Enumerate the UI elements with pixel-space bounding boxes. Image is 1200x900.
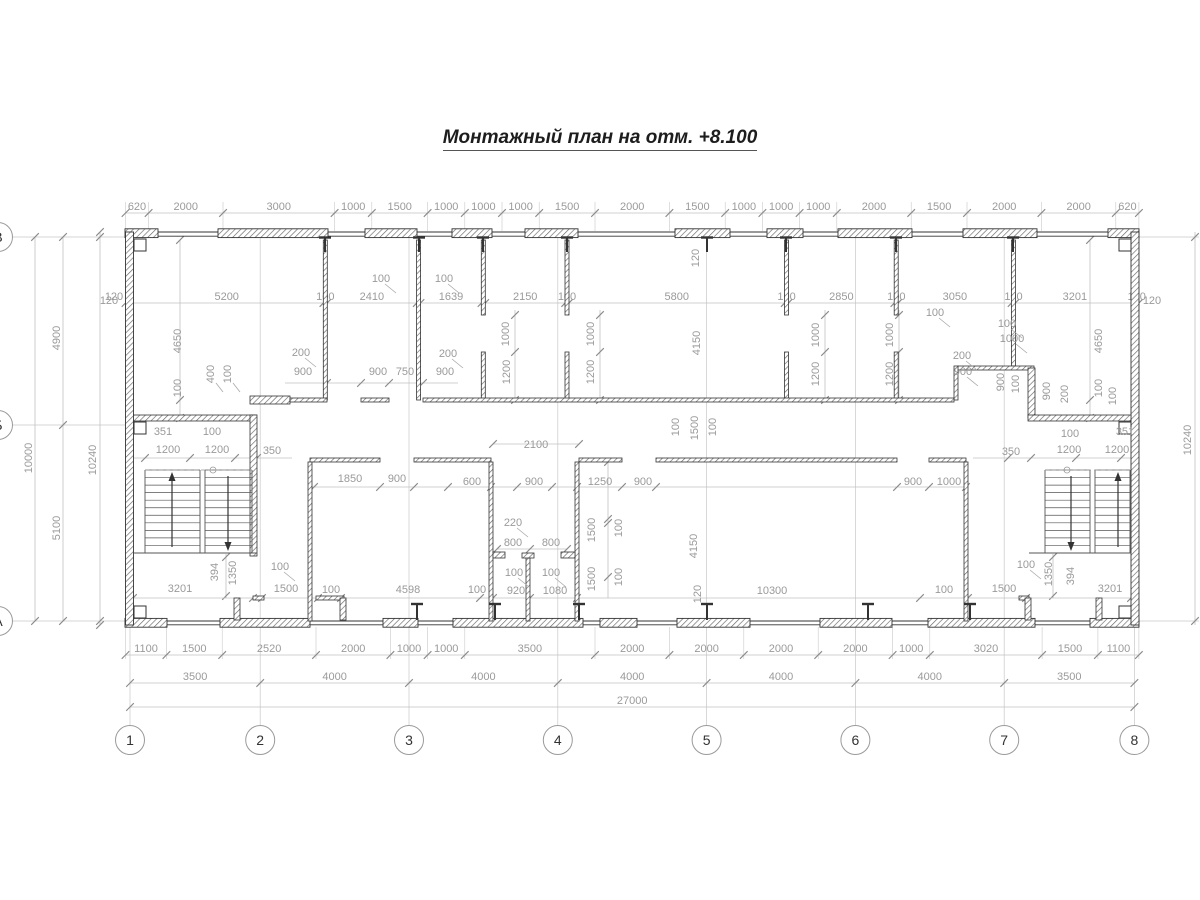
dim-label: 2000 <box>843 643 867 655</box>
stair-direction-arrow-up <box>1115 472 1122 547</box>
dim-label: 1000 <box>500 322 512 346</box>
stair-direction-arrow-down <box>1068 476 1075 551</box>
dim-label: 4000 <box>769 671 793 683</box>
dim-label: 3201 <box>168 583 192 595</box>
dim-label: 2850 <box>829 291 853 303</box>
dim-label: 5 <box>703 732 711 748</box>
dim-label: 2000 <box>862 201 886 213</box>
dim-label: 1200 <box>1105 444 1129 456</box>
dim-label: 900 <box>388 473 406 485</box>
dim-label: 2000 <box>620 201 644 213</box>
dim-label: 1250 <box>588 476 612 488</box>
dim-label: 4150 <box>691 331 703 355</box>
dim-label: 4000 <box>471 671 495 683</box>
dim-label: 100 <box>172 379 184 397</box>
dim-label: 351 <box>154 426 172 438</box>
dim-label: 1000 <box>397 643 421 655</box>
dim-label: 2410 <box>360 291 384 303</box>
dim-label: 1200 <box>501 360 513 384</box>
dim-label: 27000 <box>617 695 648 707</box>
dim-label: 2000 <box>620 643 644 655</box>
dim-label: 4650 <box>172 329 184 353</box>
dim-label: 351 <box>1116 426 1134 438</box>
dim-label: 1000 <box>899 643 923 655</box>
dim-label: 2520 <box>257 643 281 655</box>
drawing-title: Монтажный план на отм. +8.100 <box>0 127 1200 151</box>
dim-label: 3 <box>405 732 413 748</box>
dim-label: 1 <box>126 732 134 748</box>
dim-label: 1000 <box>806 201 830 213</box>
dim-label: 1000 <box>769 201 793 213</box>
dim-label: В <box>0 229 3 245</box>
dim-label: 4000 <box>918 671 942 683</box>
dim-label: 4000 <box>322 671 346 683</box>
dim-label: 100 <box>926 307 944 319</box>
dim-label: 3500 <box>183 671 207 683</box>
dim-label: 4598 <box>396 584 420 596</box>
dim-label: 1000 <box>884 323 896 347</box>
dim-label: 800 <box>504 537 522 549</box>
dim-label: 3020 <box>974 643 998 655</box>
dim-label: 10240 <box>1182 425 1194 456</box>
dim-label: 100 <box>935 584 953 596</box>
dim-label: 200 <box>953 350 971 362</box>
dim-label: 1350 <box>227 561 239 585</box>
dim-label: 100 <box>1107 387 1119 405</box>
dim-label: 200 <box>292 347 310 359</box>
dim-label: 1000 <box>508 201 532 213</box>
dim-label: 900 <box>436 366 454 378</box>
dim-label: 4 <box>554 732 562 748</box>
dim-label: 4650 <box>1093 329 1105 353</box>
dim-label: 4000 <box>620 671 644 683</box>
dim-label: 2000 <box>1066 201 1090 213</box>
dim-label: 1200 <box>884 362 896 386</box>
dim-label: 2 <box>256 732 264 748</box>
dim-label: 1500 <box>387 201 411 213</box>
page-title: Монтажный план на отм. +8.100 <box>443 127 758 151</box>
dim-label: 100 <box>1061 428 1079 440</box>
dim-label: 920 <box>507 585 525 597</box>
dim-label: 1000 <box>434 643 458 655</box>
dim-label: 3000 <box>267 201 291 213</box>
dim-label: 1100 <box>1107 643 1131 655</box>
dim-label: 394 <box>1065 567 1077 585</box>
dim-label: 5800 <box>665 291 689 303</box>
dim-label: 200 <box>1059 385 1071 403</box>
dim-label: 200 <box>439 348 457 360</box>
dim-label: 1500 <box>555 201 579 213</box>
dim-label: 1500 <box>274 583 298 595</box>
dim-label: 1500 <box>685 201 709 213</box>
dim-label: 1000 <box>341 201 365 213</box>
dim-label: 2150 <box>513 291 537 303</box>
dim-label: 750 <box>396 366 414 378</box>
dim-label: 1200 <box>585 360 597 384</box>
dim-label: 100 <box>435 273 453 285</box>
dim-label: 1500 <box>927 201 951 213</box>
dim-label: 2000 <box>992 201 1016 213</box>
dim-label: 3500 <box>1057 671 1081 683</box>
dim-label: 900 <box>995 373 1007 391</box>
dim-label: 1500 <box>182 643 206 655</box>
dim-label: 3050 <box>943 291 967 303</box>
dim-label: 2000 <box>769 643 793 655</box>
dim-label: 120 <box>692 585 704 603</box>
dim-label: 1500 <box>1058 643 1082 655</box>
dim-label: 7 <box>1000 732 1008 748</box>
dim-label: 620 <box>1118 201 1136 213</box>
dim-label: 1639 <box>439 291 463 303</box>
dim-label: 1000 <box>434 201 458 213</box>
dim-label: 120 <box>690 249 702 267</box>
stairs-layer <box>134 467 1132 553</box>
dim-label: 2000 <box>174 201 198 213</box>
dim-label: 10000 <box>23 443 35 474</box>
stair-direction-arrow-up <box>169 472 176 547</box>
dim-label: 1000 <box>732 201 756 213</box>
dim-label: 1000 <box>471 201 495 213</box>
dim-label: 900 <box>954 366 972 378</box>
dim-label: 100 <box>505 567 523 579</box>
dim-label: 8 <box>1131 732 1139 748</box>
dim-label: 3201 <box>1098 583 1122 595</box>
dim-label: 6 <box>852 732 860 748</box>
dim-label: 1200 <box>1057 444 1081 456</box>
dim-label: 5200 <box>214 291 238 303</box>
dim-label: 1500 <box>689 416 701 440</box>
dim-label: 1850 <box>338 473 362 485</box>
dim-label: 100 <box>203 426 221 438</box>
stair-direction-arrow-down <box>225 476 232 551</box>
dim-label: 600 <box>463 476 481 488</box>
dim-label: 350 <box>1002 446 1020 458</box>
floor-plan-page: 6202000300010001500100010001000150020001… <box>0 0 1200 900</box>
dim-label: 900 <box>525 476 543 488</box>
dim-label: 2000 <box>341 643 365 655</box>
dim-label: 900 <box>294 366 312 378</box>
dim-label: 1350 <box>1043 562 1055 586</box>
dim-label: 1500 <box>586 567 598 591</box>
dim-label: 100 <box>613 519 625 537</box>
dim-label: 100 <box>468 584 486 596</box>
dim-label: 4150 <box>688 534 700 558</box>
dim-label: 100 <box>707 418 719 436</box>
dim-label: 1000 <box>937 476 961 488</box>
dim-label: 100 <box>613 568 625 586</box>
dim-label: 100 <box>372 273 390 285</box>
dim-label: 1000 <box>1000 333 1024 345</box>
dim-label: 100 <box>542 567 560 579</box>
dim-label: 800 <box>542 537 560 549</box>
dim-label: 100 <box>271 561 289 573</box>
dim-label: 2000 <box>694 643 718 655</box>
dim-label: 1000 <box>810 323 822 347</box>
dim-label: 4900 <box>51 326 63 350</box>
dim-label: 900 <box>634 476 652 488</box>
dim-label: 100 <box>322 584 340 596</box>
dim-label: 1080 <box>543 585 567 597</box>
dim-label: 220 <box>504 517 522 529</box>
dim-label: 120 <box>1143 295 1161 307</box>
dim-label: 900 <box>1041 382 1053 400</box>
dim-label: 1200 <box>810 362 822 386</box>
dim-label: 100 <box>1017 559 1035 571</box>
dim-label: 1500 <box>586 518 598 542</box>
dim-label: Б <box>0 417 3 433</box>
dim-label: 100 <box>1093 379 1105 397</box>
dim-label: 350 <box>263 445 281 457</box>
dim-label: 100 <box>670 418 682 436</box>
dim-label: 620 <box>128 201 146 213</box>
dim-label: 1200 <box>156 444 180 456</box>
dim-label: 1200 <box>205 444 229 456</box>
dim-label: 394 <box>209 563 221 581</box>
dim-label: 10240 <box>87 445 99 476</box>
dim-label: 120 <box>100 295 118 307</box>
dim-label: 2100 <box>524 439 548 451</box>
dim-label: 900 <box>369 366 387 378</box>
dim-label: 100 <box>998 318 1016 330</box>
dim-label: 1500 <box>992 583 1016 595</box>
dim-label: 3201 <box>1063 291 1087 303</box>
dim-label: 3500 <box>518 643 542 655</box>
dim-label: 5100 <box>51 516 63 540</box>
dim-label: 10300 <box>757 585 788 597</box>
dim-label: 100 <box>1010 375 1022 393</box>
dim-label: 900 <box>904 476 922 488</box>
dim-label: 100 <box>222 365 234 383</box>
dim-label: 1100 <box>134 643 158 655</box>
dim-label: 1000 <box>585 322 597 346</box>
dim-label: 400 <box>205 365 217 383</box>
